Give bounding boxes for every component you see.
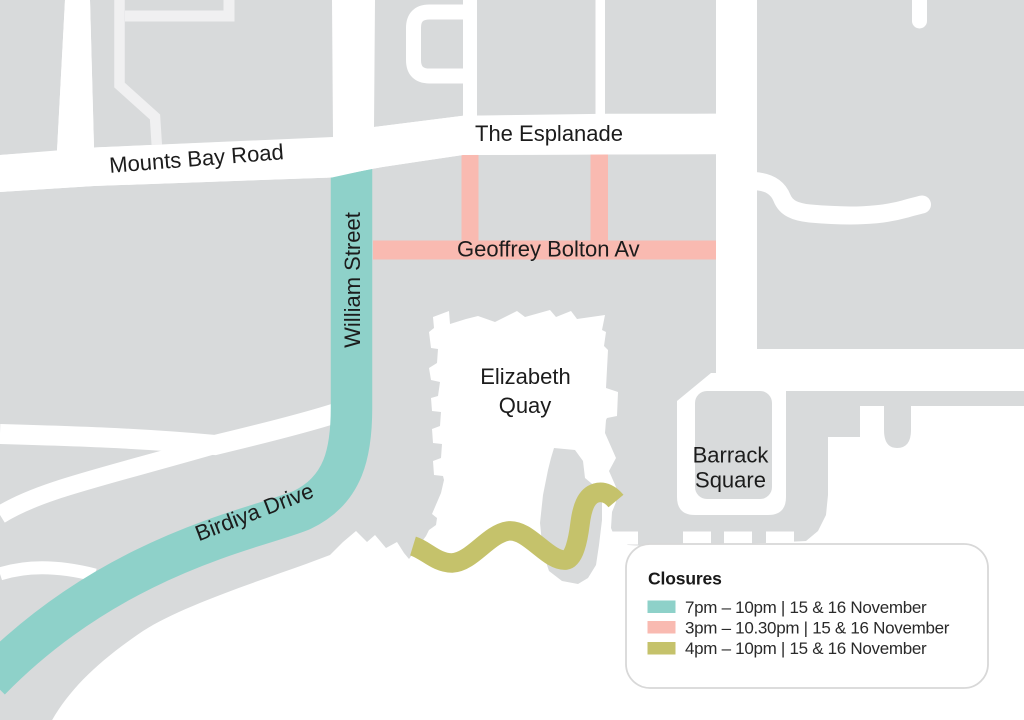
svg-text:Geoffrey Bolton Av: Geoffrey Bolton Av — [457, 237, 640, 262]
svg-text:Quay: Quay — [499, 393, 552, 418]
svg-text:Barrack: Barrack — [693, 443, 770, 468]
svg-text:Elizabeth: Elizabeth — [480, 364, 571, 389]
svg-text:The Esplanade: The Esplanade — [475, 121, 623, 146]
svg-text:Closures: Closures — [648, 569, 722, 589]
svg-text:Square: Square — [695, 468, 766, 493]
svg-text:4pm – 10pm | 15 & 16 November: 4pm – 10pm | 15 & 16 November — [685, 639, 927, 658]
svg-text:3pm – 10.30pm | 15 & 16 Novemb: 3pm – 10.30pm | 15 & 16 November — [685, 619, 950, 638]
svg-text:William Street: William Street — [340, 212, 365, 348]
svg-text:7pm – 10pm | 15 & 16 November: 7pm – 10pm | 15 & 16 November — [685, 598, 927, 617]
